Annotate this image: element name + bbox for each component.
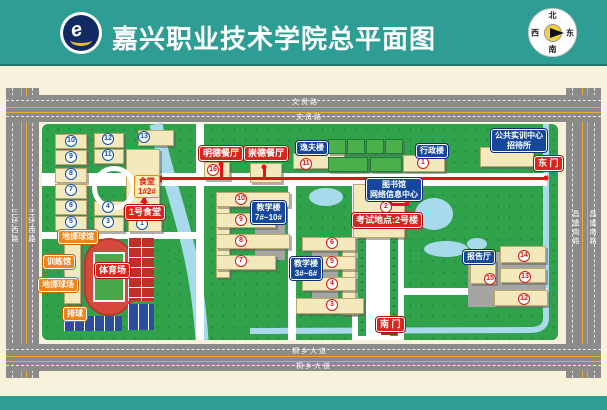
road-label-south: 桐乡大道 [296,361,332,371]
route-arrow-canteen1 [140,192,148,203]
campus-path [196,124,204,340]
campus-path [404,288,547,295]
route-arrow-canteen [151,175,162,183]
road-label-north: 文贤路 [292,97,319,107]
axis-tree-strip [390,190,398,336]
road-label-south: 桐乡大道 [292,346,328,356]
route-line-library [392,203,409,206]
pond [467,238,487,250]
route-line-main [162,177,546,180]
road-label-west: 三环西路 [26,208,36,244]
campus-path [42,232,196,239]
route-arrow-library [381,201,392,209]
road-label-east: 昌盛南路 [587,210,597,246]
road-label-west: 三环西路 [9,208,19,244]
campus-path [288,186,296,340]
route-line-library [406,180,409,205]
axis-tree-strip [358,190,366,336]
campus-map-page: e 嘉兴职业技术学院总平面图 北 南 西 东 文贤路 文贤路 桐乡大道 桐乡大道… [0,0,607,410]
pond [415,198,453,230]
route-dot-east-gate [544,176,549,181]
pond [424,241,468,257]
route-dot-chongde [262,165,267,170]
route-dot-mingde [219,162,224,167]
road-label-east: 昌盛南路 [570,210,580,246]
pond [309,188,343,206]
road-label-north: 文贤路 [296,112,323,122]
route-line-mingde [220,165,223,177]
